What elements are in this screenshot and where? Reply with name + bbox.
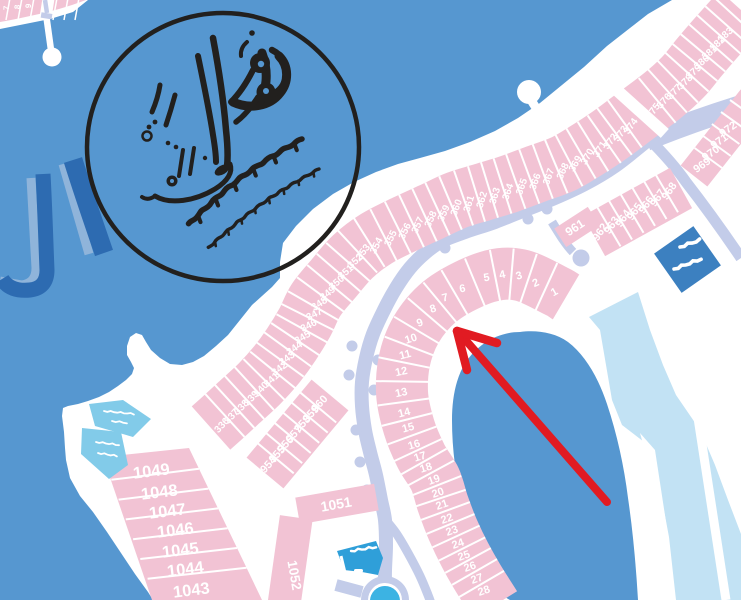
svg-text:1043: 1043 [172,579,211,600]
svg-text:12: 12 [394,365,408,379]
svg-text:13: 13 [394,386,408,400]
